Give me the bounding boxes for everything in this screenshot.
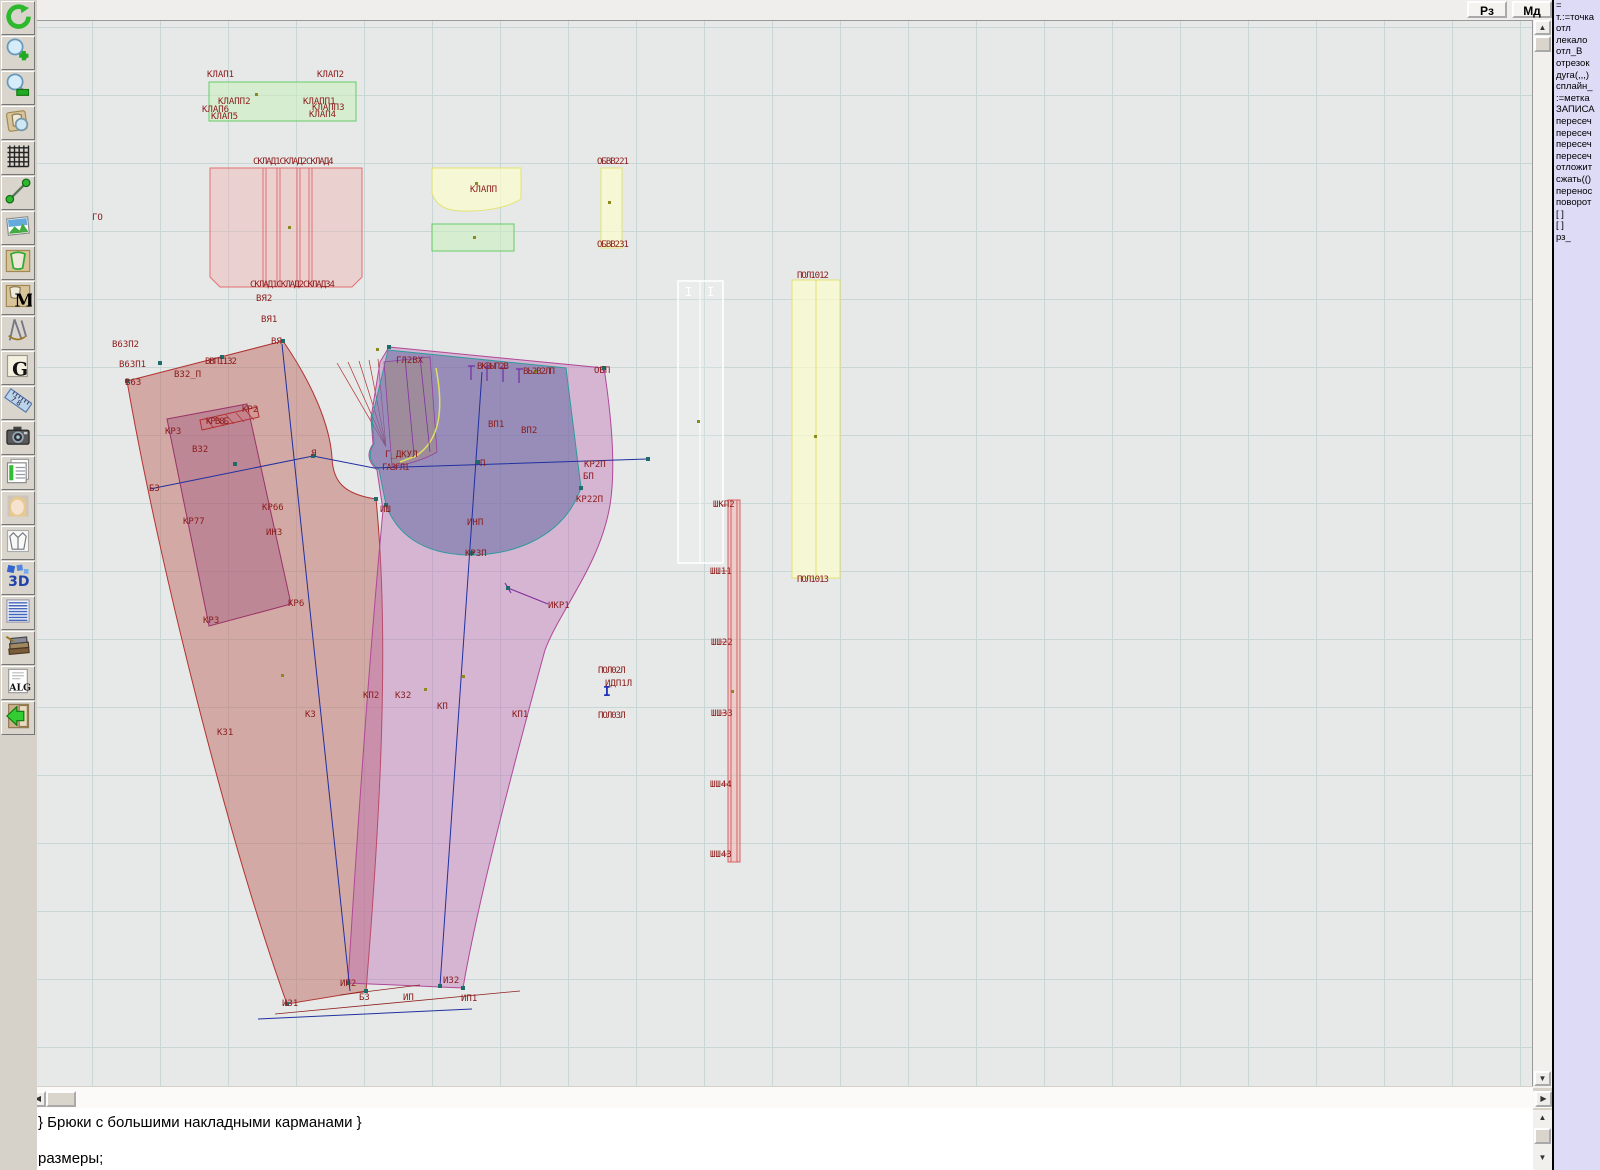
- books-icon: [4, 632, 32, 665]
- inspect-piece-button[interactable]: [1, 106, 35, 140]
- left-toolbar: M G 7 8 3D ALG: [0, 0, 37, 1170]
- canvas-vscrollbar[interactable]: ▲ ▼: [1533, 20, 1552, 1088]
- command-line[interactable]: отрезок: [1554, 58, 1600, 70]
- exit-button[interactable]: [1, 701, 35, 735]
- scroll-up-icon[interactable]: ▲: [1534, 20, 1551, 35]
- camera-button[interactable]: [1, 421, 35, 455]
- command-line[interactable]: т.:=точка: [1554, 12, 1600, 24]
- command-line[interactable]: пересеч: [1554, 139, 1600, 151]
- compass-button[interactable]: [1, 316, 35, 350]
- scroll-down-icon[interactable]: ▼: [1534, 1071, 1551, 1086]
- g-doc-icon: G: [4, 352, 32, 385]
- editor-line-2: размеры;: [38, 1150, 103, 1167]
- 3d-icon: 3D: [4, 562, 32, 595]
- command-line[interactable]: пересеч: [1554, 116, 1600, 128]
- command-line[interactable]: =: [1554, 0, 1600, 12]
- vscroll-thumb[interactable]: [1534, 36, 1551, 52]
- zoom-out-icon: [4, 72, 32, 105]
- inspect-piece-icon: [4, 107, 32, 140]
- portrait-button[interactable]: [1, 491, 35, 525]
- command-line[interactable]: сплайн_: [1554, 81, 1600, 93]
- list-button[interactable]: [1, 596, 35, 630]
- piece-button[interactable]: [1, 246, 35, 280]
- command-line[interactable]: отл: [1554, 23, 1600, 35]
- zoom-in-button[interactable]: [1, 36, 35, 70]
- top-bar: Рз Мд: [37, 0, 1554, 21]
- command-panel[interactable]: =т.:=точкаотллекалоотл_Вотрезокдуга(,,,)…: [1552, 0, 1600, 1170]
- garment-button[interactable]: [1, 526, 35, 560]
- image-button[interactable]: [1, 211, 35, 245]
- editor-line-1: } Брюки с большими накладными карманами …: [38, 1114, 362, 1131]
- command-line[interactable]: рз_: [1554, 232, 1600, 244]
- editor-scroll-up-icon[interactable]: ▲: [1534, 1112, 1551, 1126]
- list-icon: [4, 597, 32, 630]
- svg-text:M: M: [15, 291, 33, 310]
- command-line[interactable]: лекало: [1554, 35, 1600, 47]
- ruler-button[interactable]: 7 8: [1, 386, 35, 420]
- svg-text:ALG: ALG: [8, 682, 31, 693]
- editor-vscroll-thumb[interactable]: [1534, 1128, 1551, 1144]
- command-line[interactable]: [ ]: [1554, 220, 1600, 232]
- svg-text:G: G: [12, 358, 28, 380]
- exit-icon: [4, 702, 32, 735]
- zoom-out-button[interactable]: [1, 71, 35, 105]
- refresh-icon: [4, 2, 32, 35]
- svg-text:3D: 3D: [8, 573, 29, 589]
- portrait-icon: [4, 492, 32, 525]
- algorithm-editor[interactable]: } Брюки с большими накладными карманами …: [28, 1108, 1533, 1170]
- table-icon: [4, 457, 32, 490]
- drawing-canvas[interactable]: [37, 20, 1533, 1086]
- alg-button[interactable]: ALG: [1, 666, 35, 700]
- hscroll-thumb[interactable]: [46, 1091, 76, 1107]
- rz-button[interactable]: Рз: [1467, 1, 1507, 18]
- scroll-right-icon[interactable]: ▶: [1535, 1091, 1552, 1107]
- editor-scroll-down-icon[interactable]: ▼: [1534, 1152, 1551, 1166]
- command-line[interactable]: отл_В: [1554, 46, 1600, 58]
- grid-icon: [4, 142, 32, 175]
- zoom-in-icon: [4, 37, 32, 70]
- image-icon: [4, 212, 32, 245]
- editor-hscrollbar[interactable]: ◀ ▶: [30, 1091, 1552, 1108]
- table-button[interactable]: [1, 456, 35, 490]
- md-button[interactable]: Мд: [1512, 1, 1552, 18]
- command-line[interactable]: :=метка: [1554, 93, 1600, 105]
- command-line[interactable]: отложит: [1554, 162, 1600, 174]
- books-button[interactable]: [1, 631, 35, 665]
- command-line[interactable]: ЗАПИСА: [1554, 104, 1600, 116]
- piece-icon: [4, 247, 32, 280]
- g-doc-button[interactable]: G: [1, 351, 35, 385]
- editor-vscrollbar[interactable]: ▲ ▼: [1533, 1110, 1552, 1170]
- compass-icon: [4, 317, 32, 350]
- command-line[interactable]: пересеч: [1554, 151, 1600, 163]
- command-line[interactable]: сжать((): [1554, 174, 1600, 186]
- command-line[interactable]: дуга(,,,): [1554, 70, 1600, 82]
- ruler-icon: 7 8: [4, 387, 32, 420]
- command-line[interactable]: поворот: [1554, 197, 1600, 209]
- measure-icon: [4, 177, 32, 210]
- command-line[interactable]: пересеч: [1554, 128, 1600, 140]
- command-line[interactable]: перенос: [1554, 186, 1600, 198]
- materials-m-icon: M: [4, 282, 32, 315]
- camera-icon: [4, 422, 32, 455]
- grid-button[interactable]: [1, 141, 35, 175]
- alg-icon: ALG: [4, 667, 32, 700]
- materials-m-button[interactable]: M: [1, 281, 35, 315]
- 3d-button[interactable]: 3D: [1, 561, 35, 595]
- measure-button[interactable]: [1, 176, 35, 210]
- garment-icon: [4, 527, 32, 560]
- command-line[interactable]: [ ]: [1554, 209, 1600, 221]
- refresh-button[interactable]: [1, 1, 35, 35]
